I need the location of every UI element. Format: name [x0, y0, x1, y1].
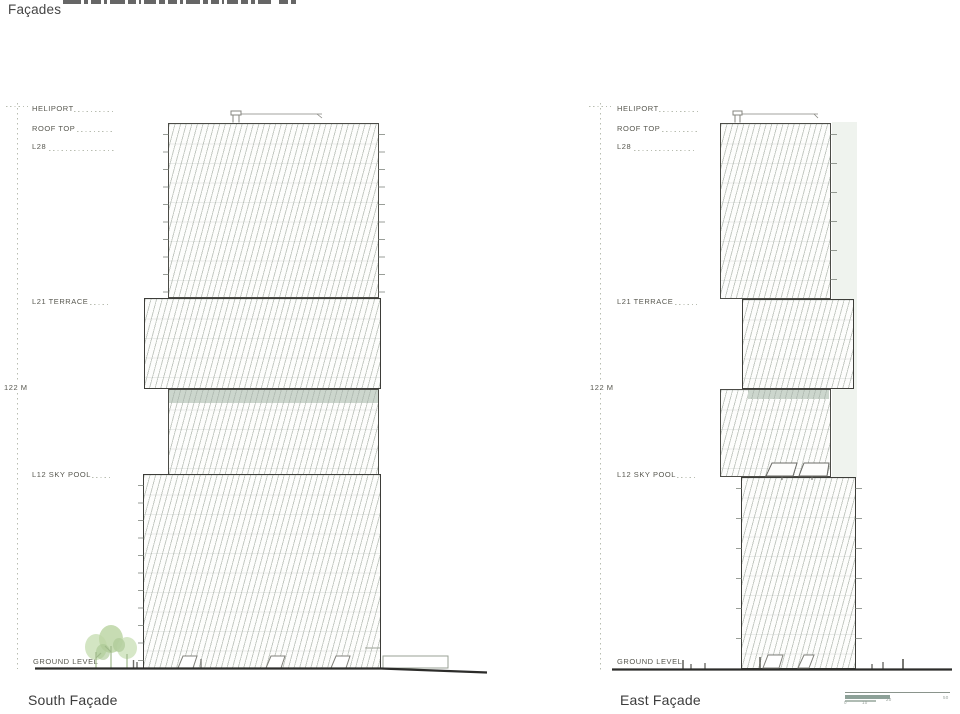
- scale-bar-segment-10: [845, 700, 876, 702]
- leader-dots: [92, 477, 110, 478]
- leader-dots: [74, 111, 116, 112]
- leader-dots: [634, 150, 696, 151]
- south-level-rooftop: ROOF TOP: [32, 124, 75, 133]
- south-height-mark: 122 M: [4, 383, 28, 392]
- scale-tick-0: 0: [844, 700, 847, 705]
- south-heliport-mark: [231, 111, 322, 123]
- east-level-ground: GROUND LEVEL: [617, 657, 682, 666]
- south-terrace-block: [144, 298, 381, 389]
- leader-dots: [662, 131, 700, 132]
- south-level-l12: L12 SKY POOL: [32, 470, 91, 479]
- leader-dots: [49, 150, 115, 151]
- east-level-heliport: HELIPORT: [617, 104, 659, 113]
- facades-sheet: Façades HELIPORT ROOF TOP L28 L21 TERRAC…: [0, 0, 960, 714]
- south-level-ground: GROUND LEVEL: [33, 657, 98, 666]
- scale-bar-line: [845, 692, 950, 693]
- east-heliport-tick: [589, 106, 611, 107]
- south-level-l28: L28: [32, 142, 46, 151]
- east-height-mark: 122 M: [590, 383, 614, 392]
- east-level-rooftop: ROOF TOP: [617, 124, 660, 133]
- clipped-header-text: [63, 0, 299, 4]
- east-level-l28: L28: [617, 142, 631, 151]
- south-level-heliport: HELIPORT: [32, 104, 74, 113]
- east-terrace-block: [742, 299, 854, 389]
- sheet-title: Façades: [8, 2, 61, 17]
- leader-dots: [659, 111, 699, 112]
- leader-dots: [675, 304, 697, 305]
- south-facade-caption: South Façade: [28, 692, 118, 708]
- scale-bar-segment-20: [845, 695, 890, 699]
- east-level-l12: L12 SKY POOL: [617, 470, 676, 479]
- scale-tick-20: 20: [886, 697, 892, 702]
- leader-dots: [677, 477, 697, 478]
- south-heliport-tick: [6, 106, 28, 107]
- south-lower-block: [143, 474, 381, 669]
- east-upper-block: [720, 123, 831, 299]
- east-heliport-mark: [733, 111, 818, 123]
- south-level-l21: L21 TERRACE: [32, 297, 88, 306]
- leader-dots: [77, 131, 115, 132]
- leader-dots: [90, 304, 110, 305]
- scale-tick-10: 10: [862, 700, 868, 705]
- east-mid-block: [720, 389, 831, 477]
- south-upper-block: [168, 123, 379, 298]
- east-facade-caption: East Façade: [620, 692, 701, 708]
- scale-tick-50: 50: [943, 695, 949, 700]
- south-ground-line: [35, 669, 487, 673]
- east-level-l21: L21 TERRACE: [617, 297, 673, 306]
- east-lower-block: [741, 477, 856, 669]
- east-122m-band: [748, 390, 829, 399]
- south-122m-band: [169, 390, 378, 403]
